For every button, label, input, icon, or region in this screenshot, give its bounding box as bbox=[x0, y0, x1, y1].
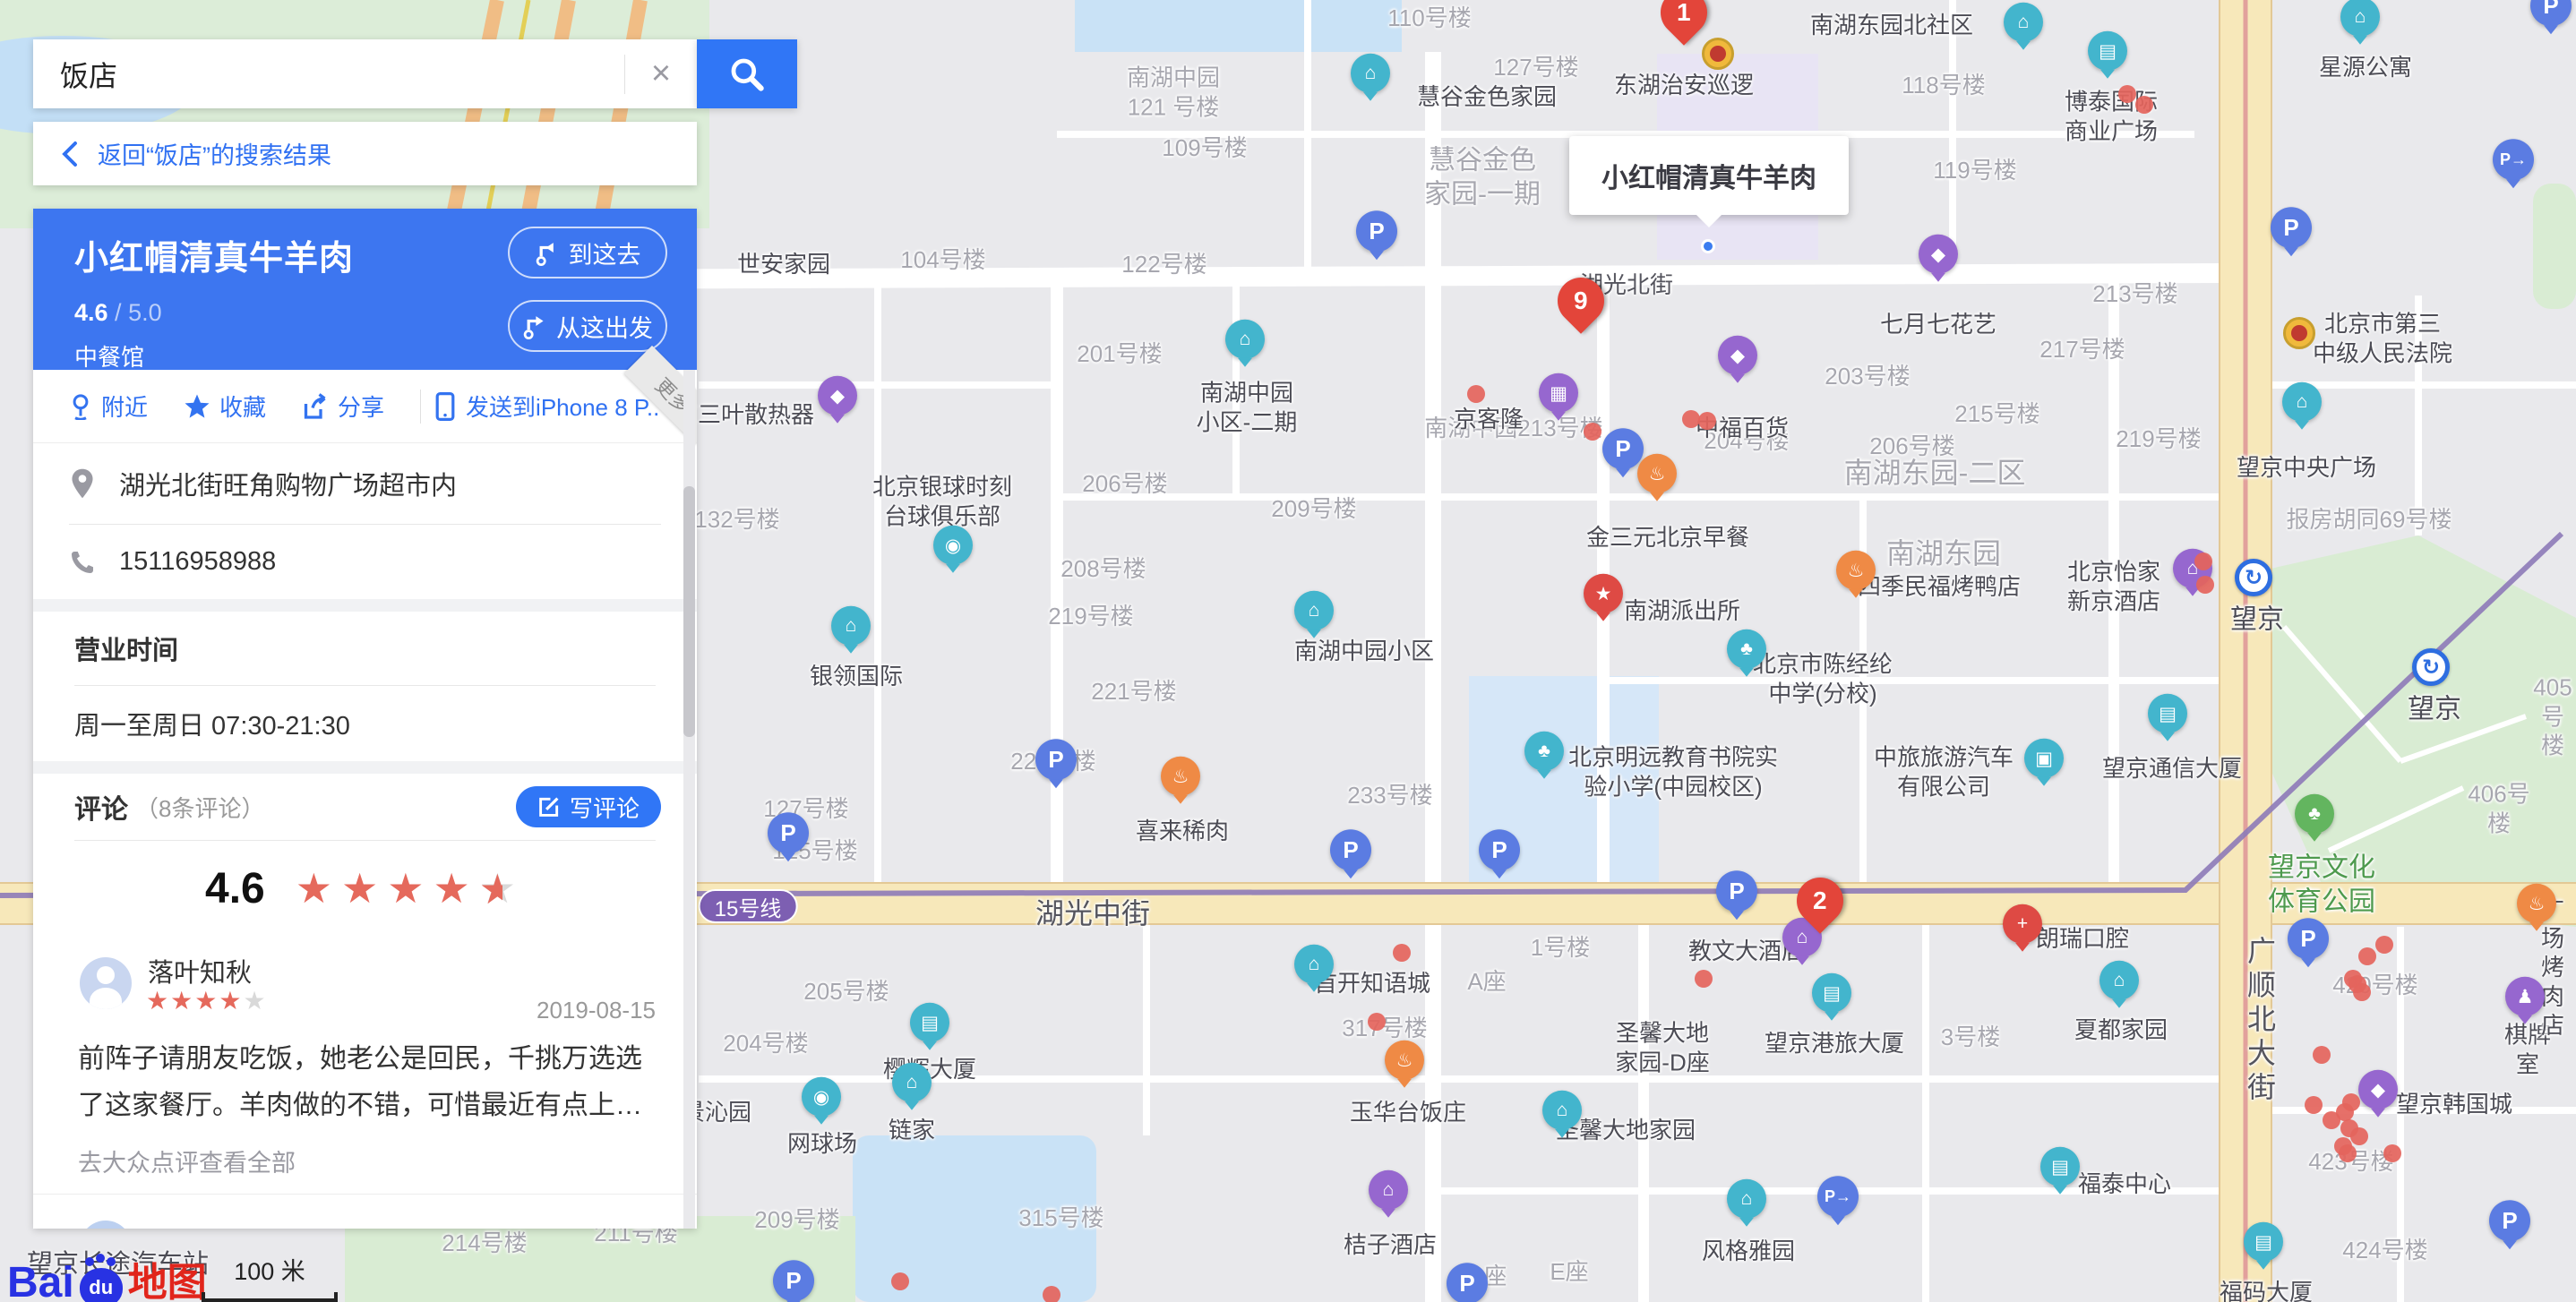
poi-marker[interactable]: ▦ bbox=[1539, 373, 1578, 413]
subway-station-icon[interactable]: ↻ bbox=[2235, 559, 2272, 596]
poi-dot[interactable] bbox=[2118, 85, 2136, 103]
address-row[interactable]: 湖光北街旺角购物广场超市内 bbox=[33, 443, 697, 524]
map-label: 望京文化 体育公园 bbox=[2268, 852, 2375, 919]
review-item: 艾迪茉莉装圈圈 bbox=[33, 1195, 697, 1229]
rating-stars: ★★★★★★ bbox=[296, 864, 525, 912]
rating-summary: 4.6 ★★★★★★ bbox=[33, 841, 697, 936]
map-label: 北京明远教育书院实 验小学(中园校区) bbox=[1568, 743, 1778, 801]
poi-dot[interactable] bbox=[1682, 410, 1700, 428]
map-label: 南湖东园-二区 bbox=[1844, 455, 2026, 491]
poi-marker[interactable]: ⌂ bbox=[2282, 382, 2322, 422]
map-label: 217号楼 bbox=[2039, 335, 2125, 364]
map-label: E座 bbox=[1550, 1257, 1588, 1287]
star-icon bbox=[184, 393, 210, 420]
baidu-paw-icon: du bbox=[80, 1268, 123, 1302]
subway-station-icon[interactable]: ↻ bbox=[2412, 648, 2450, 686]
reviewer-avatar bbox=[80, 957, 132, 1009]
map-label: 233号楼 bbox=[1347, 781, 1432, 810]
map-label: 京客隆 bbox=[1454, 405, 1524, 434]
parking-marker[interactable]: P bbox=[773, 1260, 814, 1301]
map-label: 213号楼 bbox=[2092, 279, 2177, 309]
map-label: 110号楼 bbox=[1387, 4, 1471, 33]
map-label: 喜来稀肉 bbox=[1136, 817, 1229, 846]
map-label: 3号楼 bbox=[1941, 1023, 2000, 1052]
map-label: 北京银球时刻 台球俱乐部 bbox=[872, 473, 1012, 531]
map-label: 209号楼 bbox=[1271, 494, 1356, 524]
poi-dot[interactable] bbox=[2339, 1144, 2357, 1162]
map-label: 桔子酒店 bbox=[1344, 1230, 1437, 1260]
star-icon: ★ bbox=[296, 865, 341, 912]
send-to-phone-label: 发送到iPhone 8 P.. bbox=[466, 390, 659, 423]
star-icon: ★ bbox=[194, 987, 219, 1015]
map-label: 122号楼 bbox=[1121, 250, 1206, 279]
star-icon: ★★ bbox=[479, 865, 525, 912]
poi-tooltip-label: 小红帽清真牛羊肉 bbox=[1601, 156, 1816, 195]
baidu-logo-map: 地图 bbox=[128, 1250, 207, 1302]
parking-marker[interactable]: P bbox=[2489, 1200, 2530, 1241]
map-label: 118号楼 bbox=[1902, 71, 1985, 100]
poi-tooltip[interactable]: 小红帽清真牛羊肉 bbox=[1569, 136, 1849, 215]
poi-dot[interactable] bbox=[1368, 1013, 1386, 1031]
star-icon: ★ bbox=[243, 987, 267, 1015]
write-review-button[interactable]: 写评论 bbox=[516, 786, 661, 827]
baidu-map-app: 110号楼118号楼119号楼南湖中园 121 号楼127号楼109号楼慧谷金色… bbox=[0, 0, 2576, 1302]
map-label: 朗瑞口腔 bbox=[2036, 924, 2129, 954]
poi-marker[interactable]: ⌂ bbox=[2099, 961, 2139, 1000]
search-icon bbox=[727, 55, 767, 94]
map-label: 206号楼 bbox=[1082, 469, 1167, 499]
reviewer-name: 落叶知秋 bbox=[148, 952, 252, 989]
hours-value: 周一至周日 07:30-21:30 bbox=[33, 686, 697, 761]
map-label: 208号楼 bbox=[1060, 554, 1146, 584]
poi-marker[interactable]: ⌂ bbox=[831, 606, 871, 646]
map-label: 北京怡家 新京酒店 bbox=[2067, 558, 2160, 616]
poi-dot[interactable] bbox=[2305, 1096, 2323, 1114]
panel-scrollbar[interactable] bbox=[683, 370, 695, 1229]
map-label: A座 bbox=[1467, 967, 1506, 997]
map-label: 望京通信大厦 bbox=[2102, 754, 2242, 784]
restaurant-marker[interactable]: ♨ bbox=[1385, 1041, 1424, 1080]
clear-search-icon[interactable]: × bbox=[625, 55, 697, 93]
map-label: 北京市第三 中级人民法院 bbox=[2313, 310, 2452, 368]
map-label: 109号楼 bbox=[1162, 133, 1247, 163]
star-icon: ★ bbox=[433, 865, 478, 912]
back-link-label: 返回“饭店”的搜索结果 bbox=[98, 136, 331, 171]
route-from-here-label: 从这出发 bbox=[556, 309, 653, 344]
map-label: 中旅旅游汽车 有限公司 bbox=[1874, 743, 2014, 801]
map-label: 221号楼 bbox=[1091, 677, 1176, 707]
parking-marker[interactable]: P bbox=[1447, 1263, 1488, 1302]
write-review-label: 写评论 bbox=[570, 791, 640, 824]
map-label: 七月七花艺 bbox=[1880, 310, 1996, 339]
map-label: 银领国际 bbox=[810, 662, 903, 691]
share-button[interactable]: 分享 bbox=[302, 390, 384, 423]
share-icon bbox=[302, 393, 329, 420]
map-label: 报房胡同69号楼 bbox=[2287, 505, 2452, 535]
parking-marker[interactable]: P bbox=[1356, 210, 1397, 252]
parking-marker[interactable]: P bbox=[1716, 870, 1757, 912]
poi-dot[interactable] bbox=[2323, 1111, 2340, 1129]
map-label: 南湖中园 121 号楼 bbox=[1127, 64, 1220, 122]
government-badge-icon[interactable] bbox=[2283, 317, 2315, 349]
map-label: 风格雅园 bbox=[1702, 1237, 1795, 1266]
map-label: 望京韩国城 bbox=[2396, 1090, 2512, 1119]
map-scale: 100 米 bbox=[202, 1252, 338, 1302]
poi-dot[interactable] bbox=[2383, 1144, 2401, 1162]
location-dot[interactable] bbox=[1701, 239, 1715, 253]
map-label: 214号楼 bbox=[442, 1229, 527, 1258]
actions-divider bbox=[420, 390, 421, 424]
scale-bar bbox=[202, 1292, 338, 1302]
poi-marker[interactable]: ⌂ bbox=[2004, 3, 2043, 42]
parking-marker[interactable]: P bbox=[1330, 829, 1371, 870]
search-button[interactable] bbox=[697, 39, 797, 108]
map-label: 慧谷金色 家园-一期 bbox=[1424, 144, 1541, 211]
poi-dot[interactable] bbox=[1695, 970, 1713, 988]
map-label: 望京 bbox=[2230, 603, 2284, 637]
poi-rating-max: 5.0 bbox=[128, 299, 162, 326]
poi-dot[interactable] bbox=[2375, 936, 2393, 954]
section-gap bbox=[33, 599, 697, 612]
poi-marker[interactable]: ⌂ bbox=[892, 1063, 932, 1102]
poi-dot[interactable] bbox=[2313, 1046, 2331, 1064]
location-pin-icon bbox=[69, 467, 96, 500]
poi-marker[interactable]: ♣ bbox=[1524, 732, 1564, 771]
government-badge-icon[interactable] bbox=[1702, 38, 1734, 70]
poi-dot[interactable] bbox=[2358, 947, 2376, 965]
map-label: 424号楼 bbox=[2342, 1236, 2427, 1265]
map-label: 405号楼 bbox=[2533, 672, 2572, 760]
poi-marker[interactable]: ⌂ bbox=[1369, 1170, 1408, 1210]
reviewer-avatar bbox=[80, 1221, 132, 1229]
map-label: 南湖中园小区 bbox=[1294, 637, 1434, 666]
route-from-here-button[interactable]: 从这出发 bbox=[508, 300, 667, 352]
map-label: 203号楼 bbox=[1825, 362, 1910, 391]
poi-marker[interactable]: ◉ bbox=[802, 1077, 841, 1117]
map-label: 望京 bbox=[2408, 692, 2461, 726]
review-date: 2019-08-15 bbox=[537, 997, 656, 1024]
poi-marker[interactable]: ⌂ bbox=[1351, 54, 1390, 93]
map-label: 圣馨大地 家园-D座 bbox=[1615, 1019, 1709, 1077]
poi-marker[interactable]: ▤ bbox=[2088, 31, 2127, 71]
poi-marker[interactable]: ▤ bbox=[910, 1003, 949, 1042]
map-label: 315号楼 bbox=[1018, 1203, 1103, 1233]
baidu-logo: Bai du 地图 bbox=[7, 1250, 207, 1302]
subway-line-badge: 15号线 bbox=[699, 889, 798, 923]
map-label: 406号楼 bbox=[2460, 780, 2537, 838]
map-label: 湖光中街 bbox=[1035, 895, 1150, 931]
favorite-button[interactable]: 收藏 bbox=[184, 390, 266, 423]
map-label: 金三元北京早餐 bbox=[1586, 523, 1749, 552]
restaurant-marker[interactable]: ♨ bbox=[1637, 454, 1677, 493]
poi-marker[interactable]: ⌂ bbox=[1225, 320, 1265, 359]
parking-marker[interactable]: P bbox=[1479, 829, 1520, 870]
map-label: 1号楼 bbox=[1531, 933, 1590, 963]
poi-marker[interactable]: ▤ bbox=[2040, 1147, 2080, 1186]
poi-dot[interactable] bbox=[891, 1272, 909, 1290]
hours-title: 营业时间 bbox=[33, 612, 697, 685]
map-label: 205号楼 bbox=[803, 977, 889, 1006]
map-label: 南湖东园北社区 bbox=[1810, 11, 1973, 40]
poi-marker[interactable]: ▤ bbox=[2244, 1222, 2283, 1262]
phone-icon bbox=[69, 549, 96, 576]
parking-marker[interactable]: P bbox=[2271, 207, 2312, 248]
divider bbox=[33, 1194, 697, 1195]
map-label: 望京中央广场 bbox=[2237, 453, 2376, 483]
poi-header: 小红帽清真牛羊肉 4.6 / 5.0 中餐馆 到这去 从这出发 bbox=[33, 209, 697, 370]
police-marker[interactable]: + bbox=[2003, 904, 2042, 944]
rating-score-big: 4.6 bbox=[205, 864, 265, 913]
poi-marker[interactable]: ⌂ bbox=[1542, 1091, 1582, 1130]
poi-dot[interactable] bbox=[2353, 983, 2371, 1001]
parking-marker[interactable]: P→ bbox=[2493, 139, 2534, 180]
map-label: 127号楼 bbox=[1493, 53, 1578, 82]
map-label: 119号楼 bbox=[1933, 156, 2016, 185]
poi-marker[interactable]: ▤ bbox=[1812, 973, 1851, 1013]
map-label: 夏都家园 bbox=[2074, 1015, 2168, 1045]
poi-marker[interactable]: ◆ bbox=[818, 376, 857, 415]
nearby-label: 附近 bbox=[101, 390, 148, 423]
search-bar: × bbox=[33, 39, 697, 108]
parking-marker[interactable]: P→ bbox=[1817, 1176, 1859, 1217]
dianping-link[interactable]: 去大众点评查看全部 bbox=[78, 1144, 296, 1178]
map-label: 北京市陈经纶 中学(分校) bbox=[1753, 650, 1893, 708]
map-label: 广顺北大街 bbox=[2242, 936, 2278, 1106]
phone-device-icon bbox=[434, 392, 457, 421]
poi-marker[interactable]: ♣ bbox=[1727, 630, 1766, 669]
favorite-label: 收藏 bbox=[219, 390, 266, 423]
parking-marker[interactable]: P bbox=[768, 812, 809, 853]
review-text: 前阵子请朋友吃饭，她老公是回民，千挑万选选了这家餐厅。羊肉做的不错，可惜最近有点… bbox=[78, 1036, 658, 1129]
poi-dot[interactable] bbox=[1698, 412, 1716, 430]
map-label: 201号楼 bbox=[1077, 339, 1162, 369]
poi-marker[interactable]: ⌂ bbox=[1294, 945, 1334, 984]
poi-marker[interactable]: ◉ bbox=[933, 526, 973, 565]
share-label: 分享 bbox=[338, 390, 384, 423]
parking-marker[interactable]: P bbox=[1035, 739, 1077, 780]
reviews-title: 评论 bbox=[74, 787, 128, 827]
poi-marker[interactable]: ◆ bbox=[2358, 1070, 2398, 1109]
phone-text: 15116958988 bbox=[119, 547, 276, 577]
map-label: 网球场 bbox=[787, 1129, 857, 1159]
search-input[interactable] bbox=[33, 39, 624, 108]
map-label: 219号楼 bbox=[2116, 424, 2201, 454]
restaurant-marker[interactable]: ♨ bbox=[2517, 884, 2556, 923]
phone-row[interactable]: 15116958988 bbox=[33, 525, 697, 599]
map-label: 104号楼 bbox=[900, 245, 985, 275]
star-icon: ★ bbox=[387, 865, 433, 912]
map-label: 215号楼 bbox=[1954, 399, 2039, 429]
reviews-header: 评论 （8条评论） 写评论 bbox=[33, 774, 697, 840]
poi-dot[interactable] bbox=[2135, 96, 2153, 114]
map-label: 星源公寓 bbox=[2319, 53, 2412, 82]
map-label: 南湖中园 小区-二期 bbox=[1197, 379, 1298, 437]
route-to-here-button[interactable]: 到这去 bbox=[508, 227, 667, 278]
review-item: 落叶知秋 ★★★★★ 2019-08-15 前阵子请朋友吃饭，她老公是回民，千挑… bbox=[33, 936, 697, 1195]
poi-marker[interactable]: ◆ bbox=[1919, 235, 1958, 274]
poi-dot[interactable] bbox=[1043, 1286, 1060, 1302]
poi-marker[interactable]: ⌂ bbox=[1727, 1179, 1766, 1219]
restaurant-marker[interactable]: ♨ bbox=[1836, 551, 1876, 590]
poi-dot[interactable] bbox=[1467, 385, 1485, 403]
map-label: 南湖东园 bbox=[1886, 535, 2001, 571]
pencil-icon bbox=[537, 795, 561, 818]
nearby-pin-icon bbox=[69, 393, 92, 420]
map-label: 219号楼 bbox=[1048, 602, 1133, 631]
send-to-phone-button[interactable]: 发送到iPhone 8 P.. bbox=[434, 390, 659, 423]
map-label: 东湖治安巡逻 bbox=[1614, 71, 1754, 100]
poi-actions-row: 附近 收藏 分享 发送到iPhone bbox=[33, 370, 697, 443]
nearby-button[interactable]: 附近 bbox=[69, 390, 148, 423]
route-from-icon bbox=[522, 313, 547, 339]
police-marker[interactable]: ★ bbox=[1584, 574, 1623, 613]
poi-marker[interactable]: ◆ bbox=[1718, 336, 1757, 375]
restaurant-marker[interactable]: ♨ bbox=[1161, 757, 1200, 796]
poi-detail-panel: 小红帽清真牛羊肉 4.6 / 5.0 中餐馆 到这去 从这出发 bbox=[33, 209, 697, 1229]
star-icon: ★ bbox=[219, 987, 243, 1015]
map-label: 链家 bbox=[889, 1116, 935, 1145]
address-text: 湖光北街旺角购物广场超市内 bbox=[119, 465, 457, 502]
map-label: 福码大厦 bbox=[2220, 1278, 2313, 1302]
star-icon: ★ bbox=[170, 987, 194, 1015]
map-label: 慧谷金色家园 bbox=[1417, 82, 1557, 112]
section-gap bbox=[33, 761, 697, 774]
map-label: 世安家园 bbox=[737, 250, 830, 279]
baidu-logo-bai: Bai bbox=[7, 1258, 74, 1302]
poi-marker[interactable]: ⌂ bbox=[1294, 591, 1334, 630]
map-label: 福泰中心 bbox=[2078, 1169, 2171, 1199]
map-label: 玉华台饭庄 bbox=[1350, 1098, 1466, 1127]
map-label: 四季民福烤鸭店 bbox=[1858, 572, 2021, 602]
map-label: 132号楼 bbox=[694, 505, 779, 535]
poi-dot[interactable] bbox=[1393, 944, 1411, 962]
poi-dot[interactable] bbox=[2350, 1127, 2368, 1145]
star-icon: ★ bbox=[146, 987, 170, 1015]
scale-text: 100 米 bbox=[202, 1252, 338, 1287]
map-label: 望京港旅大厦 bbox=[1765, 1029, 1904, 1058]
route-to-icon bbox=[535, 239, 560, 266]
parking-marker[interactable]: P bbox=[2288, 918, 2329, 959]
poi-marker[interactable]: ♟ bbox=[2505, 977, 2545, 1016]
poi-dot[interactable] bbox=[2196, 576, 2214, 594]
map-label: 204号楼 bbox=[723, 1029, 808, 1058]
map-label: 209号楼 bbox=[754, 1205, 839, 1235]
route-to-here-label: 到这去 bbox=[569, 236, 641, 270]
scrollbar-thumb[interactable] bbox=[683, 486, 695, 737]
chevron-left-icon bbox=[58, 141, 82, 167]
reviewer-stars: ★★★★★ bbox=[146, 986, 268, 1015]
park-marker[interactable]: ♣ bbox=[2295, 794, 2334, 834]
poi-dot[interactable] bbox=[2194, 552, 2212, 570]
poi-marker[interactable]: ▣ bbox=[2024, 739, 2064, 778]
reviews-count: （8条评论） bbox=[135, 791, 264, 824]
star-icon: ★ bbox=[341, 865, 387, 912]
poi-dot[interactable] bbox=[1584, 423, 1601, 441]
parking-marker[interactable]: P bbox=[1602, 428, 1644, 469]
back-to-results[interactable]: 返回“饭店”的搜索结果 bbox=[33, 122, 697, 185]
map-label: 南湖派出所 bbox=[1624, 596, 1740, 626]
poi-marker[interactable]: ▤ bbox=[2148, 694, 2187, 733]
poi-rating-score: 4.6 bbox=[74, 299, 108, 326]
